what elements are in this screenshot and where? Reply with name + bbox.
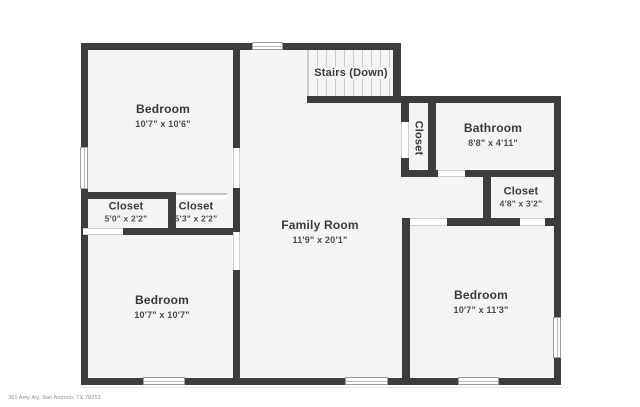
room-dims: 4'8" x 3'2" (500, 199, 543, 209)
room-label-family-room: Family Room 11'9" x 20'1" (281, 219, 359, 245)
wall-bottom-1 (81, 378, 143, 385)
stairs-area: Stairs (Down) (307, 50, 393, 96)
wall-closet48-left (483, 170, 491, 218)
room-dims: 10'7" x 10'7" (134, 310, 189, 320)
wall-hall-closet-left-upper (401, 103, 409, 122)
room-name: Closet (105, 200, 148, 213)
room-name: Bedroom (135, 103, 190, 117)
room-name: Bedroom (134, 294, 189, 308)
wall-bedroom-br-top-corner (545, 218, 561, 226)
window-bottom-bedroom-left (143, 377, 185, 385)
wall-bathroom-bottom-left (401, 170, 438, 177)
window-right (553, 317, 561, 358)
door-bedroom-top-left (233, 148, 240, 188)
plan-bottom-shadow (80, 387, 562, 388)
wall-right-upper (554, 96, 561, 317)
window-bottom-family (345, 377, 388, 385)
door-closet48 (520, 218, 545, 226)
door-closet-b (176, 193, 227, 199)
room-dims: 5'3" x 2'2" (175, 214, 218, 224)
window-top (252, 42, 283, 50)
room-dims: 11'9" x 20'1" (281, 235, 359, 245)
wall-right-lower (554, 358, 561, 385)
room-label-closet-a: Closet 5'0" x 2'2" (105, 200, 148, 223)
room-label-bedroom-bottom-left: Bedroom 10'7" x 10'7" (134, 294, 189, 320)
window-left (80, 147, 88, 189)
door-closet-a (83, 228, 123, 235)
room-label-bathroom: Bathroom 8'8" x 4'11" (464, 122, 522, 148)
wall-left-upper (81, 43, 88, 148)
door-bathroom (438, 170, 465, 177)
footer-address: 361 Amy Aly, San Antonio, TX 78253 (8, 395, 101, 401)
wall-closet-row-top (81, 192, 176, 199)
wall-bedroom-br-top (447, 218, 520, 226)
room-name: Closet (412, 121, 425, 156)
room-label-closet48: Closet 4'8" x 3'2" (500, 185, 543, 208)
floor-plan-canvas: Stairs (Down) Bedroom 10'7" x 10'6" C (0, 0, 640, 407)
room-label-bedroom-bottom-right: Bedroom 10'7" x 11'3" (454, 289, 509, 315)
door-bedroom-bottom-left (233, 232, 240, 270)
room-name: Closet (500, 185, 543, 198)
stairs-label: Stairs (Down) (311, 67, 391, 79)
room-dims: 10'7" x 10'6" (135, 119, 190, 129)
wall-stairs-bottom-bathroom-top (307, 96, 561, 103)
window-bottom-bedroom-right (458, 377, 499, 385)
room-label-closet-b: Closet 5'3" x 2'2" (175, 200, 218, 223)
wall-bottom-2 (185, 378, 345, 385)
door-hall-closet (401, 122, 409, 158)
room-name: Bathroom (464, 122, 522, 136)
room-label-bedroom-top-left: Bedroom 10'7" x 10'6" (135, 103, 190, 129)
wall-left-lower (81, 188, 88, 385)
wall-top-right (283, 43, 401, 50)
wall-bathroom-divider (428, 103, 436, 177)
room-name: Closet (175, 200, 218, 213)
room-dims: 8'8" x 4'11" (464, 138, 522, 148)
wall-divider-upper (233, 50, 240, 148)
wall-stairs-right (393, 43, 401, 96)
wall-closet-row-bottom (123, 228, 233, 235)
wall-divider-middle (233, 188, 240, 232)
room-name: Family Room (281, 219, 359, 233)
wall-bathroom-bottom-right (465, 170, 554, 177)
room-dims: 5'0" x 2'2" (105, 214, 148, 224)
door-bedroom-bottom-right (410, 218, 447, 226)
room-label-hall-closet: Closet (412, 121, 425, 156)
wall-bedroom-br-left (402, 218, 410, 378)
wall-divider-lower (233, 270, 240, 378)
room-dims: 10'7" x 11'3" (454, 305, 509, 315)
wall-bottom-3 (388, 378, 458, 385)
room-name: Bedroom (454, 289, 509, 303)
wall-bottom-4 (499, 378, 561, 385)
wall-top-left (81, 43, 252, 50)
